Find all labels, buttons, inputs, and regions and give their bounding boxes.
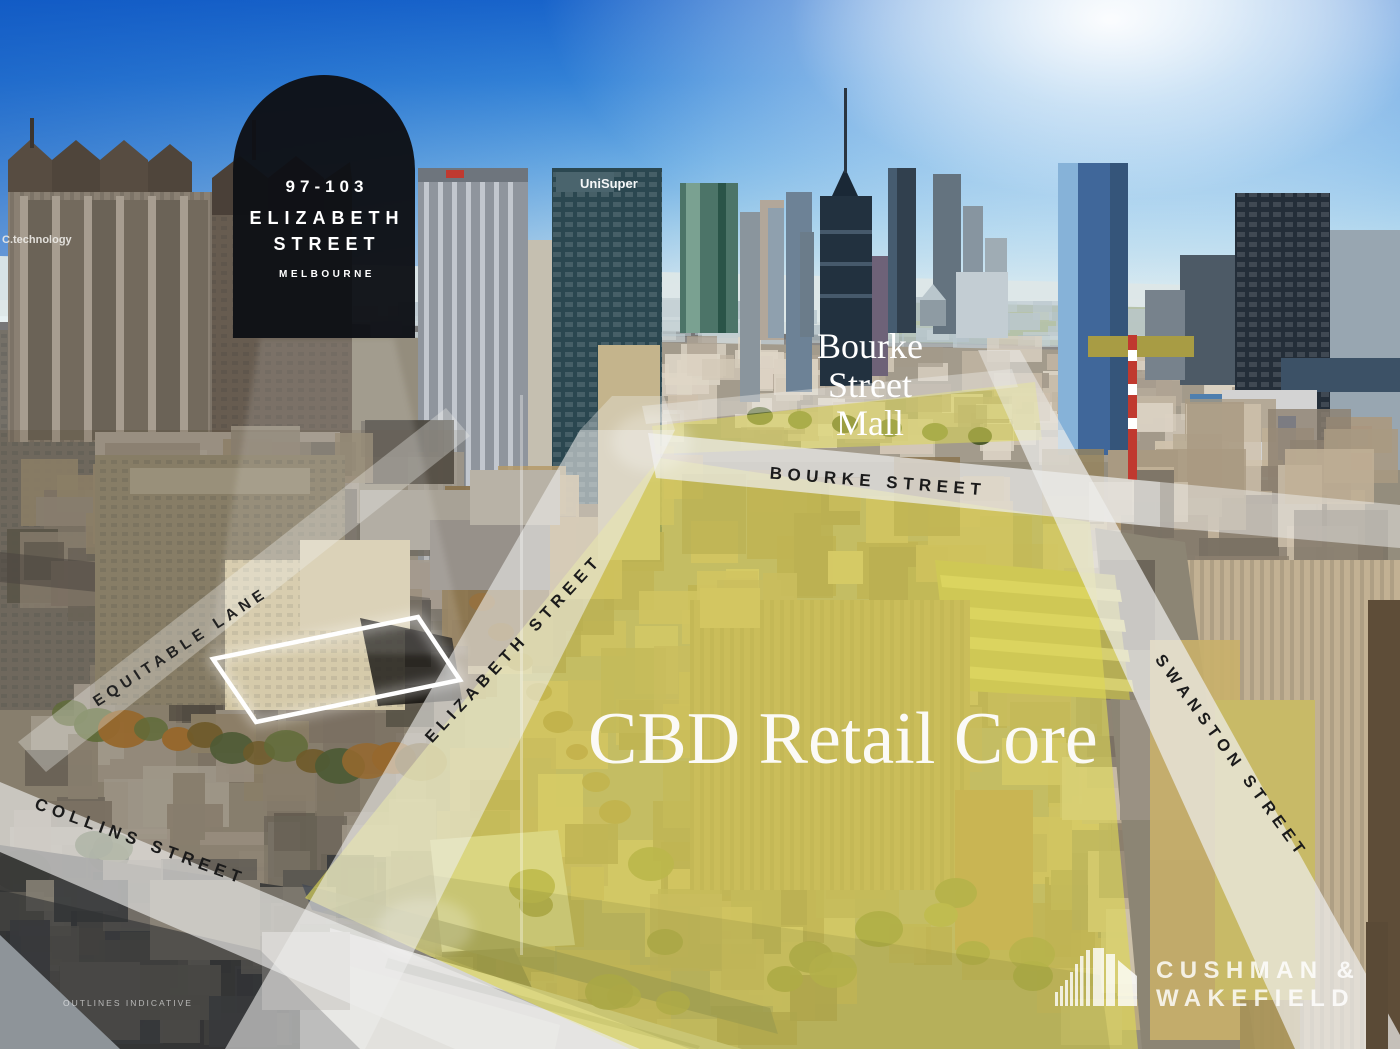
svg-text:C.technology: C.technology [2, 234, 73, 246]
svg-text:97-103: 97-103 [286, 177, 369, 196]
svg-text:OUTLINES INDICATIVE: OUTLINES INDICATIVE [63, 998, 193, 1008]
svg-text:WAKEFIELD: WAKEFIELD [1156, 985, 1355, 1012]
svg-text:MELBOURNE: MELBOURNE [279, 269, 375, 280]
svg-text:CUSHMAN &: CUSHMAN & [1156, 957, 1360, 984]
svg-text:Mall: Mall [836, 403, 904, 443]
svg-text:ELIZABETH: ELIZABETH [250, 208, 405, 228]
svg-text:UniSuper: UniSuper [580, 176, 638, 191]
svg-text:Bourke: Bourke [817, 326, 923, 366]
svg-text:CBD Retail Core: CBD Retail Core [588, 698, 1098, 780]
svg-text:STREET: STREET [273, 234, 380, 254]
svg-text:Street: Street [828, 365, 912, 405]
